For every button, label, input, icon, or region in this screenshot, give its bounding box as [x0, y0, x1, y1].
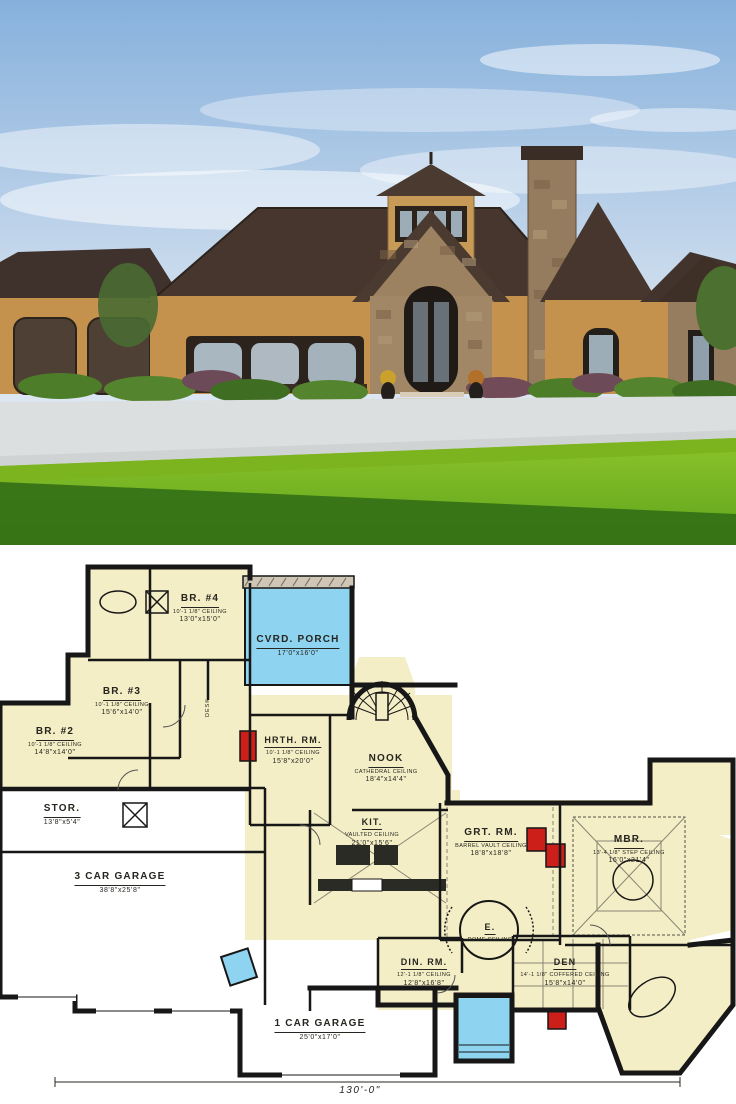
- room-ceiling: CATHEDRAL CEILING: [354, 769, 417, 776]
- pin-image: BR. #4 10'-1 1/8" CEILING 13'0"x15'0" CV…: [0, 0, 736, 1104]
- room-name: KIT.: [362, 817, 383, 830]
- room-name: HRTH. RM.: [264, 735, 321, 748]
- room-label-din-rm: DIN. RM. 12'-1 1/8" CEILING 12'8"x16'8": [397, 951, 451, 989]
- room-label-1-car-garage: 1 CAR GARAGE 25'0"x17'0": [274, 1012, 365, 1042]
- room-name: DEN: [554, 957, 577, 970]
- hero-photo: [0, 0, 736, 545]
- room-label-kit: KIT. VAULTED CEILING 21'0"x15'6": [345, 811, 399, 849]
- room-name: DIN. RM.: [401, 957, 448, 970]
- room-ceiling: 10'-1 1/8" CEILING: [264, 750, 321, 757]
- desk-label: DESK: [205, 698, 211, 717]
- room-label-3-car-garage: 3 CAR GARAGE 38'8"x25'8": [74, 865, 165, 895]
- room-label-grt-rm: GRT. RM. BARREL VAULT CEILING 18'8"x18'8…: [455, 821, 527, 859]
- entry-door: [404, 286, 458, 394]
- room-label-br4: BR. #4 10'-1 1/8" CEILING 13'0"x15'0": [173, 587, 227, 625]
- room-dims: 13'0"x15'0": [173, 616, 227, 625]
- room-name: E.: [485, 922, 496, 935]
- room-label-br3: BR. #3 10'-1 1/8" CEILING 15'6"x14'0": [95, 680, 149, 718]
- room-label-stor: STOR. 13'8"x5'4": [44, 797, 81, 827]
- overall-width-dimension: 130'-0": [339, 1085, 381, 1096]
- room-ceiling: VAULTED CEILING: [345, 832, 399, 839]
- room-name: STOR.: [44, 803, 80, 818]
- room-label-den: DEN 14'-1 1/8" COFFERED CEILING 15'8"x14…: [520, 951, 609, 989]
- window-glass: [308, 343, 356, 385]
- room-dims: 17'0"x16'0": [256, 650, 339, 659]
- room-dims: 21'0"x15'6": [345, 840, 399, 849]
- turret-glass: [400, 211, 412, 237]
- room-dims: 25'0"x17'0": [274, 1034, 365, 1043]
- room-name: MBR.: [614, 834, 644, 849]
- room-name: BR. #4: [181, 593, 219, 608]
- entry-door-glass: [413, 302, 428, 382]
- room-name: 1 CAR GARAGE: [274, 1018, 365, 1033]
- corner-window-glass: [693, 336, 709, 382]
- chimney-cap: [521, 146, 583, 160]
- room-label-entry: E. DOME CEILING: [468, 916, 513, 944]
- room-ceiling: 10'-1 1/8" CEILING: [95, 702, 149, 709]
- room-ceiling: 13'-4 1/8" STEP CEILING: [593, 850, 665, 857]
- room-name: 3 CAR GARAGE: [74, 871, 165, 886]
- window-glass: [251, 343, 299, 385]
- fireplace-hearth-room: [240, 731, 256, 761]
- entry-door-glass: [434, 302, 449, 382]
- room-dims: 14'8"x14'0": [28, 749, 82, 758]
- room-ceiling: 12'-1 1/8" CEILING: [397, 972, 451, 979]
- room-dims: 13'8"x5'4": [44, 819, 81, 828]
- floor-plan: BR. #4 10'-1 1/8" CEILING 13'0"x15'0" CV…: [0, 545, 736, 1104]
- room-label-hrth-rm: HRTH. RM. 10'-1 1/8" CEILING 15'8"x20'0": [264, 729, 321, 767]
- room-dims: 12'8"x16'8": [397, 980, 451, 989]
- turret-glass: [451, 211, 462, 237]
- room-name: GRT. RM.: [464, 827, 518, 842]
- room-dims: 38'8"x25'8": [74, 887, 165, 896]
- house-illustration: [0, 0, 736, 545]
- room-ceiling: 10'-1 1/8" CEILING: [28, 742, 82, 749]
- porch-stone-band: [243, 576, 354, 588]
- room-label-br2: BR. #2 10'-1 1/8" CEILING 14'8"x14'0": [28, 720, 82, 758]
- room-dims: 15'8"x20'0": [264, 758, 321, 767]
- room-dims: 15'8"x14'0": [520, 980, 609, 989]
- room-dims: 18'4"x14'4": [354, 776, 417, 785]
- tree-icon: [98, 263, 158, 347]
- fireplace-master: [546, 844, 565, 867]
- room-name: NOOK: [369, 753, 404, 768]
- room-label-mbr: MBR. 13'-4 1/8" STEP CEILING 16'0"x21'4": [593, 828, 665, 866]
- room-ceiling: BARREL VAULT CEILING: [455, 843, 527, 850]
- front-stoop-area: [457, 997, 511, 1061]
- room-label-cvrd-porch: CVRD. PORCH 17'0"x16'0": [256, 628, 339, 658]
- room-label-nook: NOOK CATHEDRAL CEILING 18'4"x14'4": [354, 747, 417, 785]
- room-name: BR. #2: [36, 726, 74, 741]
- room-dims: 18'8"x18'8": [455, 850, 527, 859]
- room-ceiling: 14'-1 1/8" COFFERED CEILING: [520, 972, 609, 979]
- room-ceiling: DOME CEILING: [468, 937, 513, 944]
- room-dims: 15'6"x14'0": [95, 709, 149, 718]
- room-name: BR. #3: [103, 686, 141, 701]
- fireplace-great-room: [527, 828, 546, 851]
- room-name: CVRD. PORCH: [256, 634, 339, 649]
- room-dims: 16'0"x21'4": [593, 857, 665, 866]
- room-ceiling: 10'-1 1/8" CEILING: [173, 609, 227, 616]
